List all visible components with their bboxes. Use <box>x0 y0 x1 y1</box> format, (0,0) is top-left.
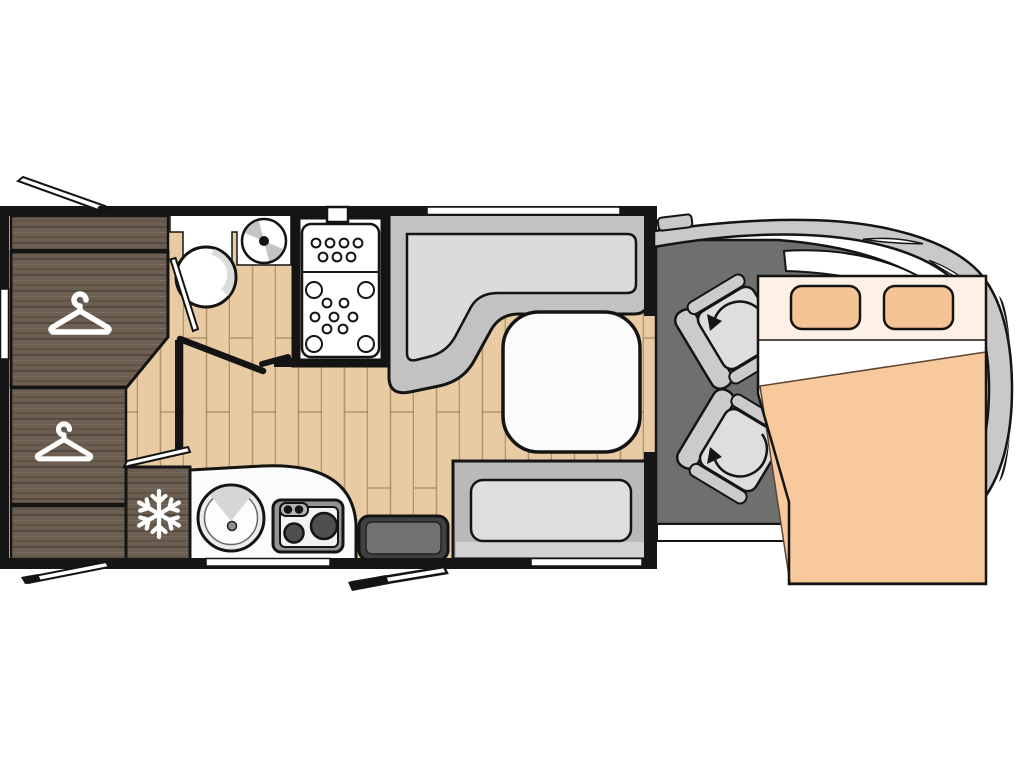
partition-wall-stub <box>175 340 183 452</box>
floorplan-canvas <box>0 0 1024 768</box>
lounge-table <box>503 312 640 452</box>
motorhome-floorplan <box>0 0 1024 768</box>
shower-door-tab <box>327 207 348 222</box>
overhead-locker <box>11 216 168 250</box>
wardrobe-lower <box>11 388 126 504</box>
drop-down-bed <box>758 276 986 584</box>
side-mirror <box>657 214 692 231</box>
cab-side-step <box>657 524 788 541</box>
window-flap-hinge <box>21 574 41 584</box>
window-bottom-lounge <box>531 559 642 567</box>
hob-knob <box>284 505 293 514</box>
hob-burner-small <box>285 524 304 543</box>
hob-knob <box>295 505 304 514</box>
hob-burner-large <box>311 513 337 539</box>
pillow-left <box>791 286 860 329</box>
sink-drain <box>228 522 237 531</box>
entry-door-hinge <box>348 575 389 591</box>
bench-seat-base <box>456 542 646 557</box>
wall-left <box>0 206 9 569</box>
entry-step-inner <box>366 522 441 554</box>
pillow-right <box>884 286 953 329</box>
fan-hub <box>259 236 269 246</box>
bench-cushion <box>471 480 631 541</box>
window-top <box>427 207 620 215</box>
lower-locker <box>11 506 126 560</box>
window-left <box>1 289 9 359</box>
window-bottom-kitchen <box>206 559 330 567</box>
window-flap-rear-top <box>18 177 105 211</box>
bed-blanket <box>760 352 986 583</box>
